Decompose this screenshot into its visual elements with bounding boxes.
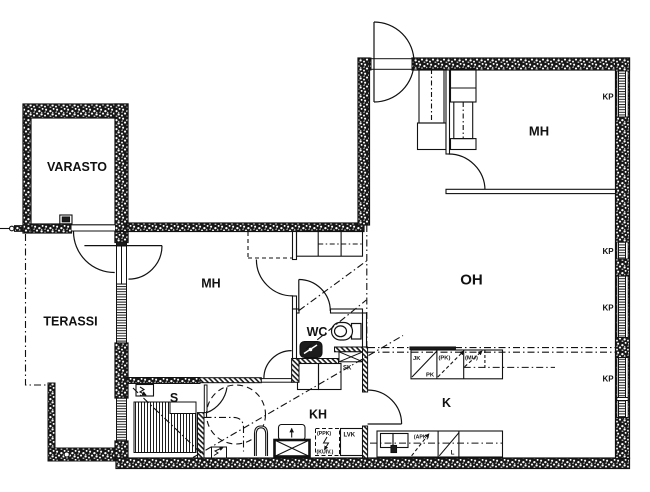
svg-text:(PPK): (PPK) — [317, 431, 331, 437]
svg-text:TERASSI: TERASSI — [43, 315, 97, 329]
svg-text:MH: MH — [529, 124, 549, 139]
svg-text:PK: PK — [426, 373, 435, 379]
svg-text:SK: SK — [343, 366, 352, 372]
svg-text:(APK): (APK) — [414, 435, 429, 441]
svg-text:(PK): (PK) — [439, 356, 451, 362]
svg-text:VARASTO: VARASTO — [47, 160, 107, 174]
svg-text:MH: MH — [201, 277, 220, 291]
svg-text:WC: WC — [307, 325, 328, 339]
svg-text:LVK: LVK — [344, 433, 356, 439]
svg-text:K: K — [442, 396, 451, 410]
svg-text:L: L — [451, 451, 455, 457]
svg-text:OH: OH — [460, 272, 483, 289]
svg-text:KP: KP — [602, 375, 614, 384]
svg-text:KH: KH — [309, 408, 327, 422]
svg-text:KP: KP — [602, 304, 614, 313]
svg-text:(KUIV.): (KUIV.) — [317, 450, 334, 456]
svg-text:KP: KP — [602, 93, 614, 102]
svg-text:KP: KP — [602, 247, 614, 256]
svg-text:JK: JK — [413, 356, 421, 362]
svg-text:(MU): (MU) — [465, 356, 478, 362]
